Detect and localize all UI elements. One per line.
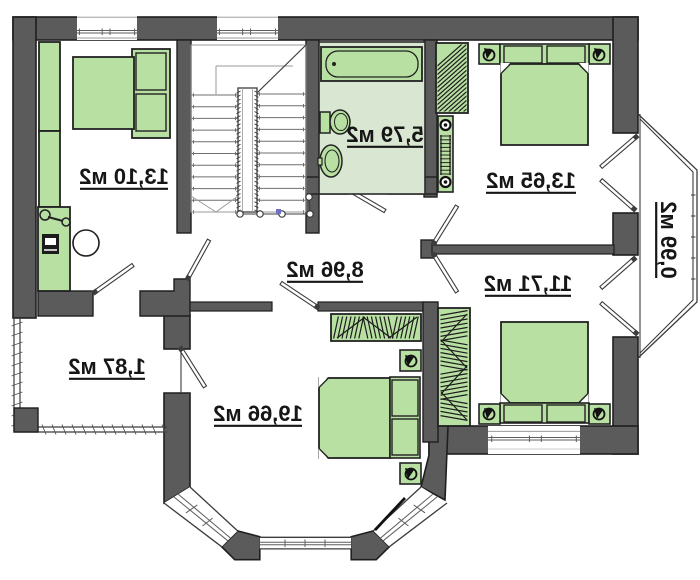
svg-text:8,96 м2: 8,96 м2 xyxy=(286,257,363,282)
svg-text:19,66 м2: 19,66 м2 xyxy=(213,401,303,426)
svg-text:0,99 м2: 0,99 м2 xyxy=(656,201,681,278)
svg-text:11,71 м2: 11,71 м2 xyxy=(484,271,572,296)
svg-text:13,10 м2: 13,10 м2 xyxy=(79,164,169,189)
svg-text:1,87 м2: 1,87 м2 xyxy=(68,354,145,379)
svg-text:5,79 м2: 5,79 м2 xyxy=(346,122,423,147)
svg-text:13,65 м2: 13,65 м2 xyxy=(486,168,576,193)
